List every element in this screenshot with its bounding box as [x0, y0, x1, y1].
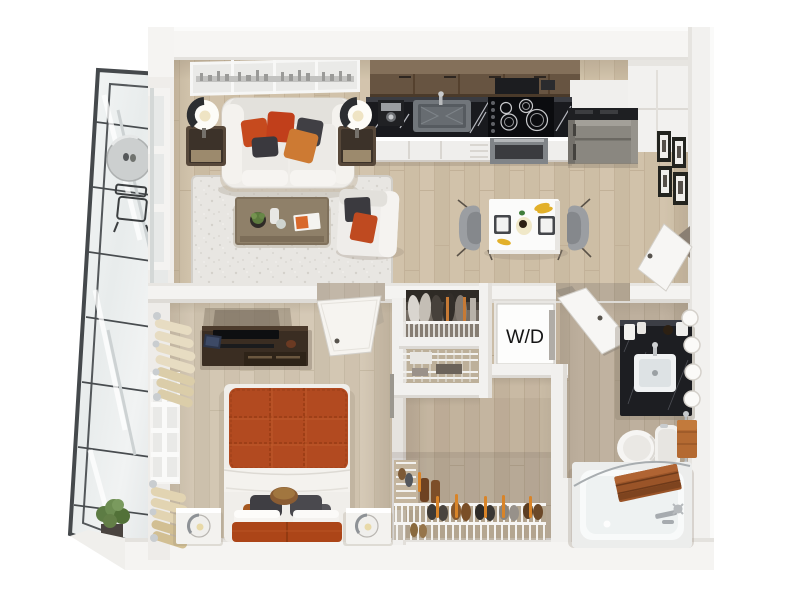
svg-text:W/D: W/D [506, 326, 544, 348]
